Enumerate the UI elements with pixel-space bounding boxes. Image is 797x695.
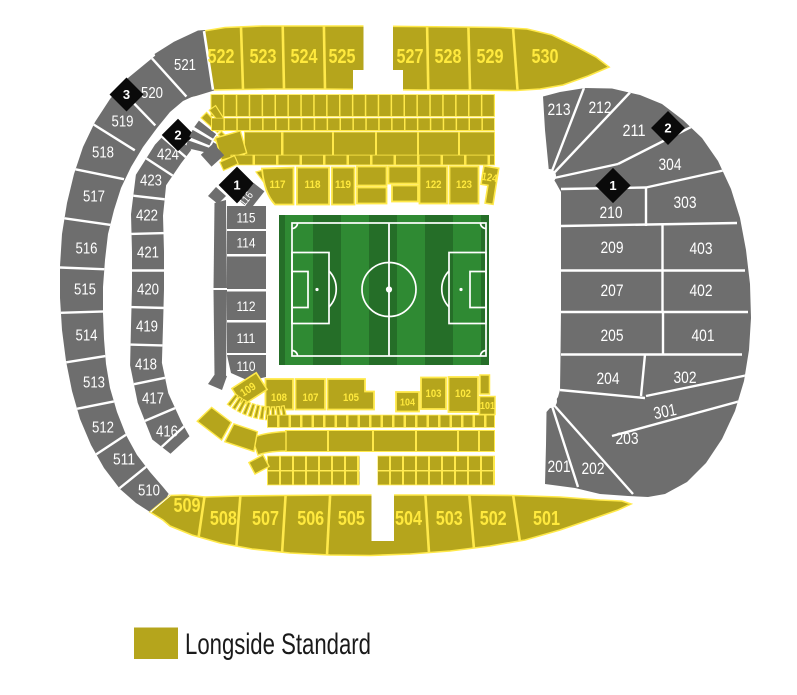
svg-text:117: 117	[270, 179, 286, 191]
svg-text:529: 529	[477, 46, 504, 68]
svg-text:204: 204	[597, 369, 620, 388]
svg-text:423: 423	[140, 173, 162, 190]
svg-text:122: 122	[426, 179, 442, 191]
svg-text:422: 422	[136, 208, 158, 225]
svg-text:530: 530	[532, 46, 559, 68]
svg-text:417: 417	[142, 391, 164, 408]
svg-text:105: 105	[343, 392, 359, 404]
svg-text:115: 115	[237, 210, 256, 226]
svg-text:511: 511	[113, 452, 135, 469]
svg-text:502: 502	[480, 508, 507, 530]
svg-text:104: 104	[400, 398, 415, 409]
svg-text:209: 209	[601, 238, 624, 257]
svg-text:513: 513	[83, 375, 105, 392]
svg-text:1: 1	[233, 178, 240, 193]
svg-text:504: 504	[395, 508, 423, 530]
svg-text:401: 401	[692, 326, 715, 345]
svg-text:518: 518	[92, 145, 114, 162]
svg-text:211: 211	[623, 121, 646, 140]
svg-text:213: 213	[548, 100, 571, 119]
svg-text:509: 509	[174, 495, 201, 517]
svg-text:103: 103	[426, 388, 442, 400]
svg-text:302: 302	[674, 368, 697, 387]
svg-text:202: 202	[582, 459, 605, 478]
svg-text:525: 525	[329, 46, 356, 68]
svg-text:519: 519	[112, 114, 134, 131]
svg-text:523: 523	[250, 46, 277, 68]
svg-text:416: 416	[156, 424, 178, 441]
svg-text:421: 421	[137, 245, 159, 262]
svg-text:418: 418	[135, 357, 157, 374]
svg-text:207: 207	[601, 281, 624, 300]
svg-text:420: 420	[137, 282, 159, 299]
svg-text:102: 102	[455, 388, 471, 400]
svg-text:520: 520	[141, 85, 163, 102]
svg-text:201: 201	[548, 457, 571, 476]
svg-text:119: 119	[335, 179, 351, 191]
svg-text:112: 112	[237, 298, 256, 314]
svg-text:517: 517	[83, 189, 105, 206]
svg-text:212: 212	[589, 98, 612, 117]
svg-text:107: 107	[303, 392, 319, 404]
svg-text:123: 123	[456, 179, 472, 191]
svg-text:515: 515	[74, 282, 96, 299]
svg-text:510: 510	[138, 483, 160, 500]
svg-text:507: 507	[252, 508, 279, 530]
svg-text:2: 2	[664, 121, 671, 136]
svg-text:424: 424	[157, 147, 179, 164]
svg-text:419: 419	[136, 319, 158, 336]
svg-text:3: 3	[123, 87, 130, 102]
svg-text:303: 303	[674, 193, 697, 212]
svg-text:506: 506	[297, 508, 324, 530]
svg-text:524: 524	[291, 46, 319, 68]
svg-text:402: 402	[690, 281, 713, 300]
svg-text:521: 521	[174, 57, 196, 74]
svg-text:110: 110	[237, 358, 256, 374]
svg-text:501: 501	[533, 508, 560, 530]
svg-text:205: 205	[601, 326, 624, 345]
svg-text:101: 101	[480, 401, 495, 412]
svg-text:203: 203	[616, 429, 639, 448]
svg-text:503: 503	[436, 508, 463, 530]
svg-text:118: 118	[305, 179, 321, 191]
svg-text:508: 508	[210, 508, 237, 530]
svg-text:114: 114	[237, 235, 256, 251]
svg-text:512: 512	[92, 420, 114, 437]
svg-text:304: 304	[659, 155, 682, 174]
svg-text:Longside Standard: Longside Standard	[185, 628, 371, 661]
svg-text:522: 522	[208, 46, 235, 68]
svg-text:516: 516	[76, 241, 98, 258]
svg-text:527: 527	[397, 46, 424, 68]
svg-text:528: 528	[435, 46, 462, 68]
svg-text:505: 505	[338, 508, 365, 530]
svg-text:1: 1	[609, 178, 616, 193]
svg-text:514: 514	[76, 328, 98, 345]
svg-text:403: 403	[690, 239, 713, 258]
svg-text:108: 108	[271, 392, 287, 404]
svg-text:2: 2	[174, 128, 181, 143]
svg-text:210: 210	[600, 203, 623, 222]
svg-text:111: 111	[237, 330, 256, 346]
